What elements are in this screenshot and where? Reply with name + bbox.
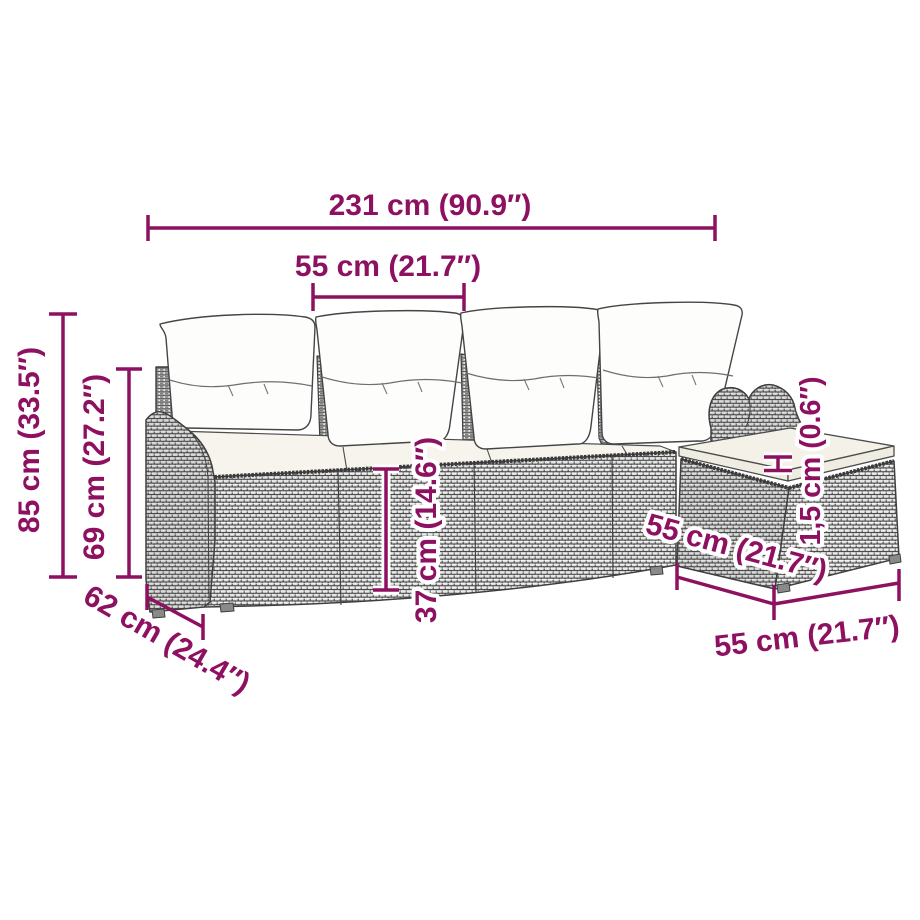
svg-text:231 cm (90.9″): 231 cm (90.9″) xyxy=(329,189,532,222)
svg-text:1,5 cm (0.6″): 1,5 cm (0.6″) xyxy=(795,377,827,546)
svg-text:69 cm (27.2″): 69 cm (27.2″) xyxy=(78,374,111,560)
svg-text:85 cm (33.5″): 85 cm (33.5″) xyxy=(13,347,46,533)
svg-text:37 cm (14.6″): 37 cm (14.6″) xyxy=(410,437,443,623)
svg-text:55 cm (21.7″): 55 cm (21.7″) xyxy=(295,250,481,283)
